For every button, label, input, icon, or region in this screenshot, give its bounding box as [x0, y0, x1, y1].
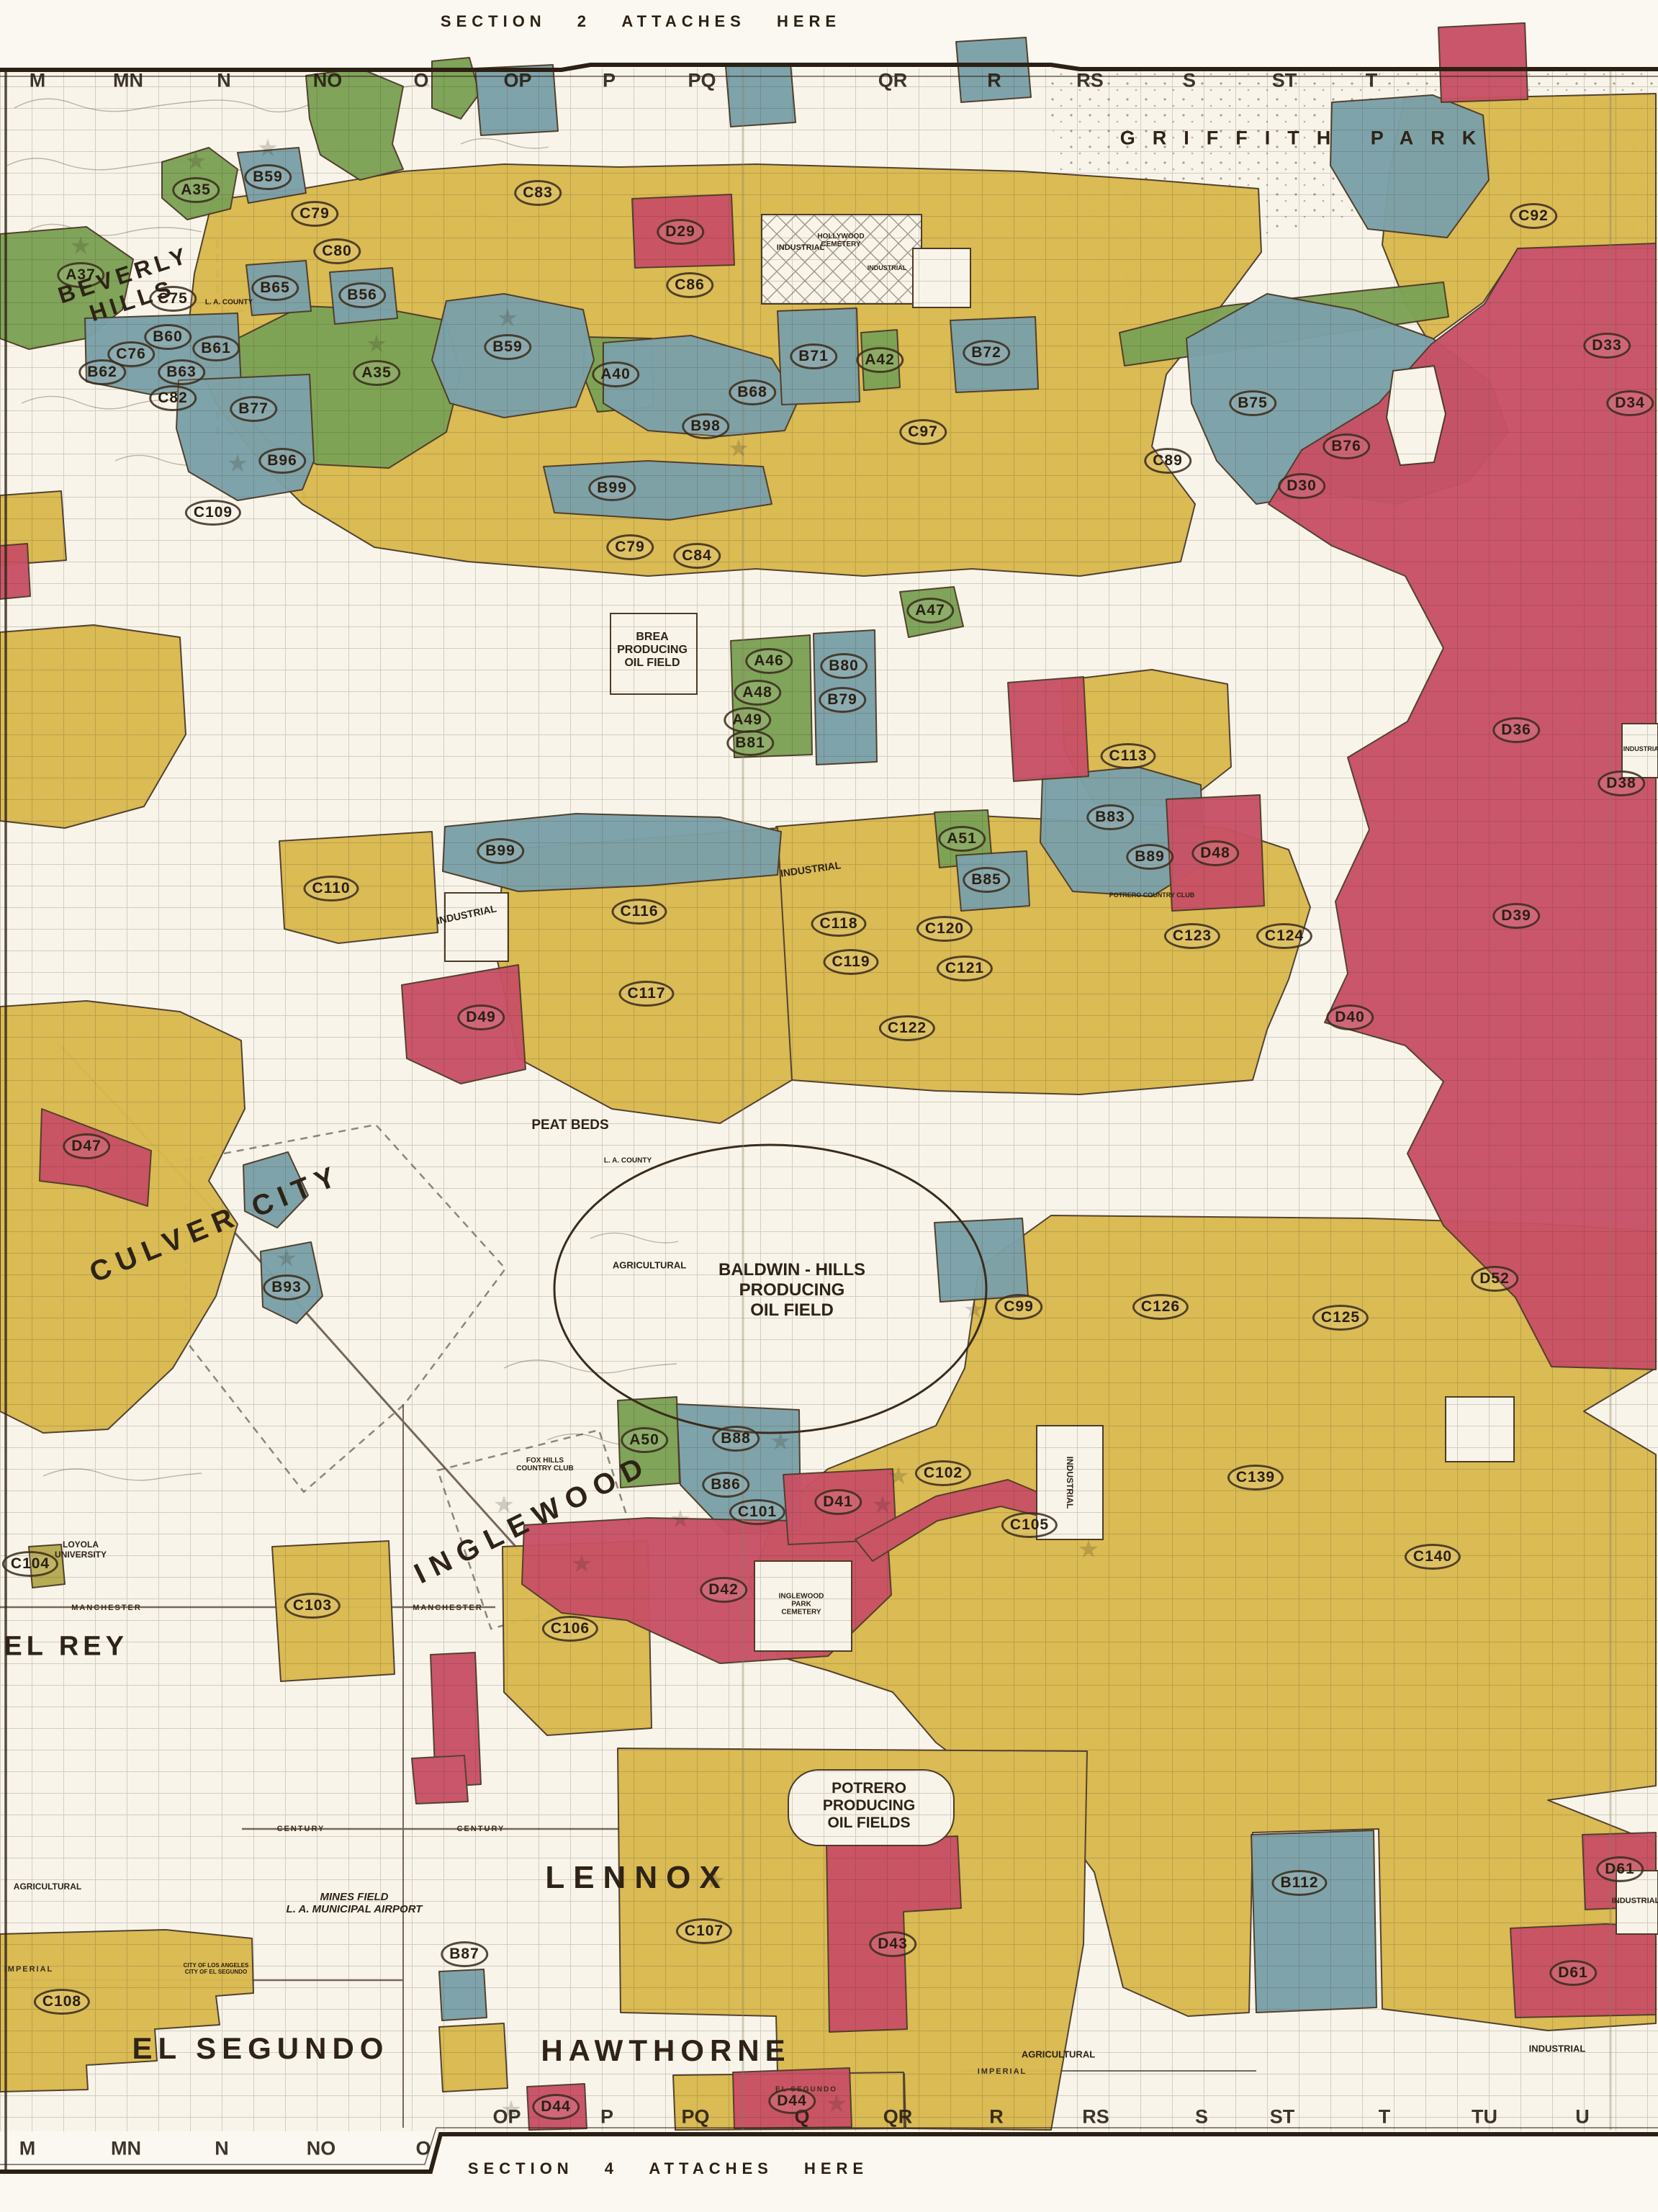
feature-label-line: OIL FIELD	[718, 1300, 865, 1321]
street-label-century: CENTURY	[277, 1825, 325, 1833]
feature-label-line: BALDWIN - HILLS	[718, 1260, 865, 1280]
city-label-line: CULVER CITY	[85, 1159, 346, 1290]
industrial-label: INDUSTRIAL	[436, 902, 497, 926]
city-label-line: LENNOX	[545, 1860, 729, 1896]
grid-letter-m: M	[19, 2138, 36, 2160]
zone-label-c110: C110	[303, 876, 359, 902]
grid-letter-tu: TU	[1472, 2106, 1497, 2128]
feature-label-inglewood-park-cemetery: INGLEWOODPARKCEMETERY	[779, 1593, 824, 1617]
zone-label-c109: C109	[185, 500, 241, 526]
star-icon: ★	[1078, 1537, 1099, 1562]
zone-label-c120: C120	[916, 916, 973, 942]
city-label-line: DEL REY	[0, 1632, 128, 1663]
feature-label-line: CEMETERY	[779, 1609, 824, 1617]
holc-security-map-section3: { "notes": { "top": "SECTION 2 ATTACHES …	[0, 0, 1658, 2212]
city-label-line: EL SEGUNDO	[132, 2031, 389, 2066]
zone-label-c125: C125	[1312, 1305, 1369, 1331]
grid-letter-pq: PQ	[681, 2106, 709, 2128]
feature-label-line: CITY OF LOS ANGELES	[184, 1962, 249, 1969]
zone-label-a35: A35	[353, 360, 400, 386]
zone-label-b65: B65	[251, 275, 299, 301]
feature-label-peat-beds: PEAT BEDS	[531, 1118, 608, 1133]
zone-label-c117: C117	[618, 981, 674, 1007]
zone-label-a48: A48	[734, 680, 781, 706]
feature-label-line: INGLEWOOD	[779, 1593, 824, 1601]
zone-label-b76: B76	[1323, 433, 1370, 459]
star-icon: ★	[185, 149, 207, 174]
zone-label-c107: C107	[676, 1918, 732, 1944]
zone-label-c79: C79	[606, 534, 654, 560]
zone-label-b87: B87	[441, 1941, 488, 1967]
street-label-imperial: IMPERIAL	[978, 2067, 1027, 2076]
zone-label-b75: B75	[1229, 390, 1276, 416]
street-label-el-segundo: EL SEGUNDO	[775, 2086, 837, 2094]
industrial-label: INDUSTRIAL	[1529, 2044, 1586, 2054]
zone-label-b85: B85	[963, 867, 1010, 893]
star-icon: ★	[670, 1507, 691, 1532]
zone-label-c140: C140	[1405, 1544, 1461, 1570]
star-icon: ★	[826, 2092, 847, 2116]
city-label-line: GRIFFITH PARK	[1120, 127, 1493, 150]
zone-label-c116: C116	[611, 899, 667, 925]
grid-letter-p: P	[603, 70, 616, 92]
grid-letter-mn: MN	[111, 2138, 141, 2160]
zone-label-c124: C124	[1256, 923, 1312, 949]
grid-letter-qr: QR	[883, 2106, 913, 2128]
feature-label-line: L. A. COUNTY	[205, 299, 253, 307]
feature-label-fox-hills-country-club: FOX HILLSCOUNTRY CLUB	[516, 1457, 573, 1473]
zone-label-d44: D44	[532, 2094, 580, 2120]
zone-label-b96: B96	[258, 448, 306, 474]
zone-label-c126: C126	[1132, 1294, 1189, 1320]
city-label-culver-city: CULVER CITY	[85, 1159, 346, 1290]
industrial-label: INDUSTRIAL	[1623, 745, 1658, 752]
zone-label-c119: C119	[823, 949, 878, 975]
zone-label-d29: D29	[657, 219, 704, 245]
zone-label-c83: C83	[514, 180, 562, 206]
feature-label-line: MINES FIELD	[287, 1891, 423, 1903]
grid-letter-mn: MN	[113, 70, 143, 92]
grid-letter-t: T	[1379, 2106, 1391, 2128]
zone-label-c139: C139	[1227, 1465, 1284, 1491]
feature-label-agricultural-3: AGRICULTURAL	[14, 1881, 81, 1892]
feature-label-line: L. A. MUNICIPAL AIRPORT	[287, 1903, 423, 1915]
industrial-label: INDUSTRIAL	[1612, 1897, 1658, 1905]
industrial-label: INDUSTRIAL	[777, 243, 825, 252]
zone-label-d43: D43	[869, 1931, 916, 1957]
feature-label-line: L. A. COUNTY	[604, 1157, 652, 1165]
grid-letter-o: O	[413, 70, 428, 92]
zone-label-b112: B112	[1271, 1870, 1327, 1896]
star-icon: ★	[257, 136, 279, 161]
zone-label-b99: B99	[477, 838, 524, 864]
feature-label-line: PARK	[779, 1601, 824, 1609]
zone-label-c80: C80	[313, 238, 361, 264]
zone-label-c86: C86	[666, 272, 713, 298]
zone-label-d40: D40	[1326, 1004, 1374, 1030]
zone-label-c99: C99	[995, 1294, 1042, 1320]
zone-label-b59: B59	[244, 164, 292, 190]
grid-letter-s: S	[1195, 2106, 1208, 2128]
zone-label-d49: D49	[457, 1004, 505, 1030]
city-label-hawthorne: HAWTHORNE	[541, 2033, 790, 2068]
zone-label-a35: A35	[172, 177, 220, 203]
industrial-label: INDUSTRIAL	[1065, 1457, 1075, 1509]
grid-letter-rs: RS	[1076, 70, 1104, 92]
grid-letter-p: P	[600, 2106, 613, 2128]
grid-letter-r: R	[987, 70, 1001, 92]
feature-label-line: PEAT BEDS	[531, 1118, 608, 1133]
zone-label-a46: A46	[745, 648, 793, 674]
feature-label-line: LOYOLA	[55, 1539, 107, 1550]
zone-label-d61: D61	[1596, 1856, 1644, 1882]
grid-letter-rs: RS	[1082, 2106, 1109, 2128]
feature-label-loyola-university: LOYOLAUNIVERSITY	[55, 1539, 107, 1560]
feature-label-line: UNIVERSITY	[55, 1550, 107, 1560]
zone-label-c97: C97	[899, 419, 947, 445]
zone-label-b59: B59	[484, 334, 531, 360]
feature-label-line: PRODUCING	[617, 644, 688, 657]
feature-label-city-limits: CITY OF LOS ANGELESCITY OF EL SEGUNDO	[184, 1962, 249, 1975]
zone-label-c101: C101	[729, 1499, 785, 1525]
grid-letter-qr: QR	[878, 70, 908, 92]
grid-letter-n: N	[217, 70, 231, 92]
zone-label-c102: C102	[915, 1460, 971, 1486]
zone-label-d61: D61	[1549, 1960, 1597, 1986]
grid-letter-o: O	[415, 2138, 431, 2160]
zone-label-b89: B89	[1126, 844, 1173, 870]
grid-letter-s: S	[1183, 70, 1196, 92]
zone-label-c89: C89	[1144, 448, 1191, 474]
zone-label-c79: C79	[291, 201, 338, 227]
star-icon: ★	[70, 234, 91, 258]
zone-label-c108: C108	[34, 1989, 90, 2015]
feature-label-agricultural-2: AGRICULTURAL	[1022, 2049, 1095, 2060]
city-label-lennox: LENNOX	[545, 1860, 729, 1896]
star-icon: ★	[500, 2098, 522, 2122]
zone-label-c113: C113	[1100, 743, 1155, 769]
zone-label-a50: A50	[621, 1427, 668, 1453]
zone-label-b60: B60	[144, 324, 192, 350]
zone-label-d42: D42	[700, 1577, 747, 1603]
zone-label-d52: D52	[1471, 1266, 1518, 1292]
grid-letter-op: OP	[503, 70, 531, 92]
zone-label-b68: B68	[729, 379, 776, 405]
zone-label-a40: A40	[592, 361, 639, 387]
feature-label-line: CITY OF EL SEGUNDO	[184, 1969, 249, 1975]
grid-letter-st: ST	[1270, 2106, 1295, 2128]
star-icon: ★	[888, 1464, 909, 1488]
zone-label-c103: C103	[284, 1593, 341, 1619]
city-label-del-rey: DEL REY	[0, 1632, 128, 1663]
star-icon: ★	[276, 1246, 297, 1271]
feature-label-line: POTRERO COUNTRY CLUB	[1109, 891, 1195, 899]
feature-label-la-county-1: L. A. COUNTY	[205, 299, 253, 307]
star-icon: ★	[872, 1493, 893, 1517]
city-label-griffith-park: GRIFFITH PARK	[1120, 127, 1493, 150]
zone-label-d34: D34	[1606, 390, 1654, 416]
zone-label-d47: D47	[63, 1133, 110, 1159]
feature-label-line: HOLLYWOOD	[817, 233, 864, 240]
street-label-manchester: MANCHESTER	[71, 1604, 142, 1612]
star-icon: ★	[963, 1298, 985, 1322]
feature-label-line: COUNTRY CLUB	[516, 1465, 573, 1473]
star-icon: ★	[571, 1552, 593, 1576]
zone-label-b77: B77	[230, 396, 277, 422]
zone-label-b98: B98	[682, 413, 729, 439]
zone-label-b99: B99	[588, 475, 636, 501]
feature-label-mines-field: MINES FIELDL. A. MUNICIPAL AIRPORT	[287, 1891, 423, 1915]
zone-label-b71: B71	[790, 343, 837, 369]
star-icon: ★	[770, 1429, 791, 1454]
zone-label-d39: D39	[1492, 903, 1540, 929]
feature-label-potrero-country-club: POTRERO COUNTRY CLUB	[1109, 891, 1195, 899]
street-label-century: CENTURY	[457, 1825, 505, 1833]
zone-label-c118: C118	[811, 911, 866, 937]
zone-label-b61: B61	[192, 336, 240, 361]
feature-label-line: OIL FIELD	[617, 657, 688, 670]
map-stage: SECTION 2 ATTACHES HERE SECTION 4 ATTACH…	[0, 0, 1658, 2212]
feature-label-line: POTRERO	[823, 1780, 915, 1797]
street-label-manchester: MANCHESTER	[413, 1604, 483, 1612]
zone-label-c122: C122	[879, 1015, 935, 1041]
section-note-bottom: SECTION 4 ATTACHES HERE	[468, 2159, 868, 2178]
city-label-el-segundo: EL SEGUNDO	[132, 2031, 389, 2066]
industrial-label: INDUSTRIAL	[780, 859, 842, 879]
city-label-line: HAWTHORNE	[541, 2033, 790, 2068]
zone-label-a51: A51	[938, 826, 986, 852]
feature-label-line: AGRICULTURAL	[613, 1260, 686, 1271]
zone-label-c106: C106	[542, 1616, 598, 1642]
star-icon: ★	[366, 332, 387, 356]
zone-label-a47: A47	[906, 598, 954, 624]
star-icon: ★	[497, 306, 518, 331]
zone-label-a49: A49	[724, 707, 771, 733]
zone-label-c92: C92	[1510, 203, 1557, 229]
feature-label-potrero-oil-fields: POTREROPRODUCINGOIL FIELDS	[823, 1780, 915, 1832]
star-icon: ★	[227, 451, 248, 476]
zone-label-c76: C76	[107, 341, 155, 367]
zone-label-b72: B72	[963, 340, 1010, 366]
zone-label-d38: D38	[1598, 770, 1645, 796]
zone-label-c121: C121	[937, 956, 993, 981]
zone-label-d48: D48	[1191, 840, 1239, 866]
industrial-label: INDUSTRIAL	[868, 264, 907, 271]
zone-label-c84: C84	[673, 543, 721, 569]
zone-label-c123: C123	[1164, 923, 1220, 949]
star-icon: ★	[728, 436, 749, 461]
grid-letter-t: T	[1366, 70, 1378, 92]
zone-label-b83: B83	[1086, 804, 1134, 830]
zone-label-c104: C104	[2, 1551, 58, 1577]
grid-letter-pq: PQ	[688, 70, 716, 92]
feature-label-line: AGRICULTURAL	[14, 1881, 81, 1892]
zone-label-b93: B93	[263, 1274, 310, 1300]
section-note-top: SECTION 2 ATTACHES HERE	[441, 12, 841, 31]
feature-label-line: OIL FIELDS	[823, 1815, 915, 1832]
feature-label-agricultural-1: AGRICULTURAL	[613, 1260, 686, 1271]
zone-label-d41: D41	[814, 1489, 862, 1515]
feature-label-baldwin-hills-oil-field: BALDWIN - HILLSPRODUCINGOIL FIELD	[718, 1260, 865, 1321]
feature-label-line: PRODUCING	[718, 1280, 865, 1300]
zone-label-d33: D33	[1583, 333, 1631, 359]
grid-letter-no: NO	[307, 2138, 336, 2160]
feature-label-line: FOX HILLS	[516, 1457, 573, 1465]
zone-label-b63: B63	[158, 359, 205, 385]
zone-label-b88: B88	[712, 1426, 760, 1452]
label-layer: SECTION 2 ATTACHES HERE SECTION 4 ATTACH…	[0, 0, 1658, 2212]
zone-label-b86: B86	[702, 1472, 749, 1498]
feature-label-brea-oil-field: BREAPRODUCINGOIL FIELD	[617, 631, 688, 670]
grid-letter-m: M	[30, 70, 46, 92]
zone-label-b80: B80	[820, 653, 868, 679]
zone-label-c105: C105	[1001, 1512, 1058, 1538]
zone-label-c82: C82	[149, 385, 197, 411]
feature-label-line: BREA	[617, 631, 688, 644]
grid-letter-st: ST	[1272, 70, 1297, 92]
street-label-imperial: IMPERIAL	[4, 1965, 54, 1974]
grid-letter-no: NO	[313, 70, 343, 92]
feature-label-line: AGRICULTURAL	[1022, 2049, 1095, 2060]
zone-label-a42: A42	[856, 347, 904, 373]
zone-label-b56: B56	[338, 282, 386, 308]
zone-label-b79: B79	[819, 687, 866, 713]
zone-label-b81: B81	[726, 730, 774, 756]
grid-letter-u: U	[1575, 2106, 1590, 2128]
grid-letter-r: R	[989, 2106, 1004, 2128]
feature-label-la-county-2: L. A. COUNTY	[604, 1157, 652, 1165]
feature-label-line: PRODUCING	[823, 1797, 915, 1815]
zone-label-d36: D36	[1492, 717, 1540, 743]
zone-label-d30: D30	[1278, 473, 1325, 499]
grid-letter-n: N	[215, 2138, 229, 2160]
